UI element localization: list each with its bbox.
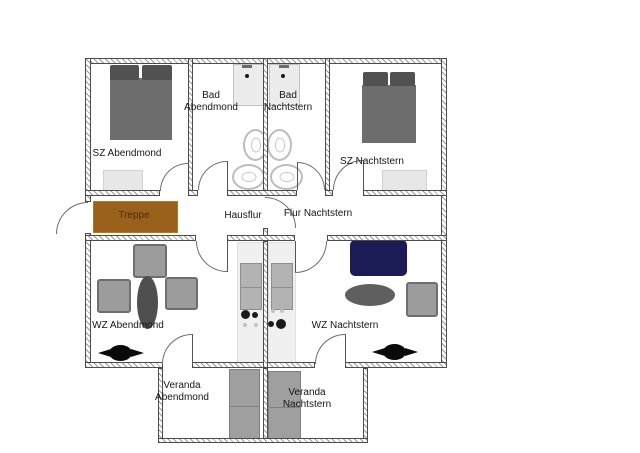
wall-sza-bada [188,58,193,196]
wall-veranda-bottom [158,438,368,443]
kitchen-counter-nachtstern [271,263,293,310]
label-bad-abendmond-line1: Bad [184,90,238,102]
door-arc-sz-abendmond [160,163,188,191]
toilet-abendmond [232,164,265,190]
armchair-abendmond-right [165,277,198,310]
door-leaf-veranda-abendmond [192,334,193,364]
wall-center-upper [263,58,268,196]
label-flur-nachtstern: Flur Nachtstern [284,208,352,220]
bed-abendmond-pillow-right [142,65,172,80]
label-veranda-nachtstern-line2: Nachtstern [283,399,331,411]
wall-left-lower [85,233,91,368]
wall-corridor-top-1 [85,190,160,196]
wall-corridor-top-2 [188,190,198,196]
bed-abendmond-pillow-left [110,65,139,80]
door-arc-veranda-abendmond [162,334,192,364]
label-bad-abendmond-line2: Abendmond [184,102,238,114]
bed-nachtstern [362,85,416,143]
armchair-nachtstern [406,282,438,317]
kitchen-counter-abendmond [240,263,262,310]
fan-wing-icon [405,348,418,356]
armchair-abendmond-top [133,244,167,278]
bed-nachtstern-pillow-left [363,72,388,86]
label-hausflur: Hausflur [224,210,261,222]
label-veranda-abendmond-line2: Abendmond [155,392,209,404]
wall-veranda-right [363,368,368,443]
bed-nachtstern-pillow-right [390,72,415,86]
label-bad-abendmond: Bad Abendmond [184,90,238,114]
door-arc-wz-nachtstern [295,241,327,273]
wall-badn-szn [325,58,330,196]
stove-knob [243,323,247,327]
door-leaf-wz-abendmond [227,241,228,272]
wall-bottom-3 [345,362,447,368]
fan-body-icon [109,345,132,361]
fan-body-icon [383,344,406,360]
wall-corridor-top-3 [227,190,297,196]
stove-burner [276,319,286,329]
wall-center-veranda [263,368,268,443]
armchair-abendmond-left [97,279,131,313]
label-wz-nachtstern: WZ Nachtstern [312,320,379,332]
dresser-abendmond [103,170,143,192]
door-arc-wz-abendmond [196,241,227,272]
door-leaf-veranda-nachtstern [345,334,346,364]
stove-knob [254,323,258,327]
wall-bottom-1 [85,362,163,368]
wall-corridor-top-5 [363,190,447,196]
label-treppe: Treppe [118,210,149,222]
wall-center-lower [263,241,268,368]
sofa-nachtstern [350,240,407,276]
wall-corridor-bottom-2 [227,235,295,241]
stove-knob [271,309,275,313]
door-arc-bad-abendmond [198,161,227,190]
label-veranda-nachtstern: Veranda Nachtstern [283,387,331,411]
fan-wing-icon [131,349,144,357]
label-veranda-abendmond-line1: Veranda [155,380,209,392]
label-wz-abendmond: WZ Abendmond [92,320,164,332]
label-bad-nachtstern-line1: Bad [264,90,312,102]
stove-burner [268,321,274,327]
label-sz-nachtstern: SZ Nachtstern [340,156,404,168]
shower-nachtstern-drain [281,74,285,78]
stove-burner [241,310,250,319]
wall-corridor-bottom-3 [327,235,447,241]
shower-nachtstern-head-icon [279,65,289,68]
wall-right [441,58,447,368]
veranda-bench-abendmond [229,369,260,442]
door-arc-veranda-nachtstern [315,334,345,364]
label-bad-nachtstern: Bad Nachtstern [264,90,312,114]
table-nachtstern [345,284,395,306]
label-sz-abendmond: SZ Abendmond [93,148,162,160]
stove-burner [252,312,258,318]
wall-corridor-top-4 [325,190,333,196]
wall-corridor-bottom-1 [85,235,196,241]
door-arc-entrance [56,202,88,234]
shower-abendmond-head-icon [242,65,252,68]
wall-bottom-2 [192,362,315,368]
door-leaf-bad-abendmond [227,161,228,190]
stove-knob [280,309,284,313]
shower-abendmond-drain [245,74,249,78]
label-veranda-abendmond: Veranda Abendmond [155,380,209,404]
label-veranda-nachtstern-line1: Veranda [283,387,331,399]
dresser-nachtstern [382,170,427,192]
label-bad-nachtstern-line2: Nachtstern [264,102,312,114]
wall-left-upper [85,58,91,202]
sink-nachtstern [267,129,292,161]
ceiling-fan-icon [98,345,144,361]
door-arc-bad-nachtstern [297,162,325,190]
floorplan-canvas: SZ Abendmond Bad Abendmond Bad Nachtster… [0,0,640,453]
ceiling-fan-icon [372,344,418,360]
bed-abendmond [110,78,172,140]
